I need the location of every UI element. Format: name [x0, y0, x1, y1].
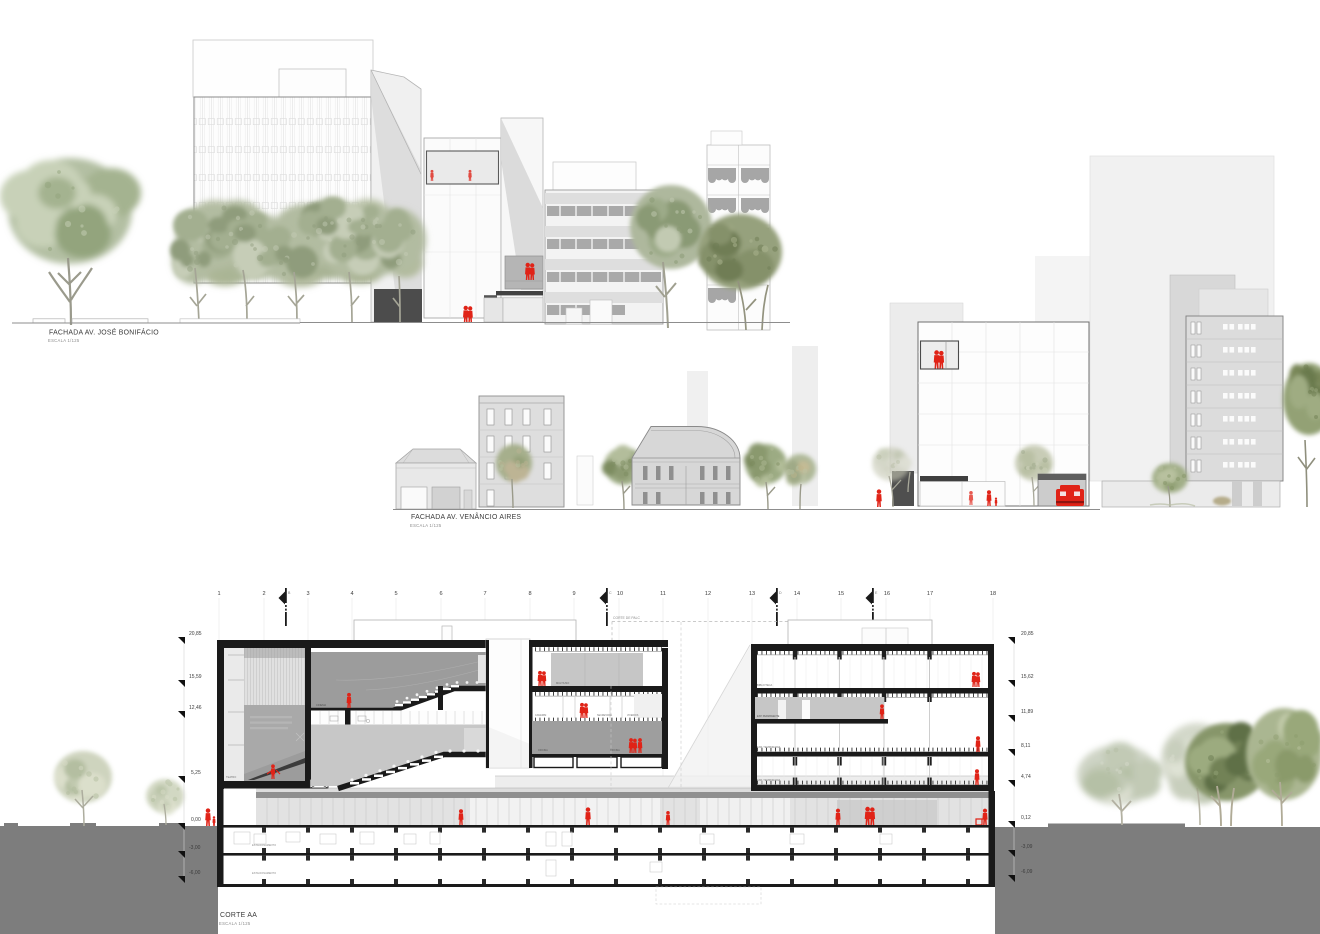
svg-text:0,00: 0,00 — [191, 817, 201, 823]
svg-text:20,85: 20,85 — [189, 631, 202, 637]
svg-text:TEATRO: TEATRO — [226, 775, 236, 779]
svg-text:8,11: 8,11 — [1021, 743, 1031, 749]
svg-text:CINEMA: CINEMA — [316, 703, 326, 707]
svg-text:-6,09: -6,09 — [1021, 869, 1033, 875]
svg-text:15: 15 — [838, 591, 844, 597]
svg-text:5,25: 5,25 — [191, 770, 201, 776]
svg-text:4,74: 4,74 — [1021, 774, 1031, 780]
svg-text:9: 9 — [572, 591, 575, 597]
svg-text:OFICINA: OFICINA — [610, 749, 620, 752]
svg-text:EXP. PERMANENTE: EXP. PERMANENTE — [757, 715, 780, 718]
svg-text:FACHADA AV. VENÂNCIO AIRES: FACHADA AV. VENÂNCIO AIRES — [411, 512, 521, 521]
svg-text:4: 4 — [350, 591, 353, 597]
svg-text:EXP. TEMPORARIA: EXP. TEMPORARIA — [757, 745, 781, 749]
svg-text:6: 6 — [439, 591, 442, 597]
svg-text:CAMARIM: CAMARIM — [535, 714, 546, 717]
svg-text:13: 13 — [749, 591, 755, 597]
svg-text:CORTE DE PALC: CORTE DE PALC — [613, 616, 641, 620]
svg-text:18: 18 — [990, 591, 996, 597]
svg-text:SECRETARIA: SECRETARIA — [597, 714, 613, 717]
svg-text:12,46: 12,46 — [189, 705, 202, 711]
svg-text:FACHADA AV. JOSÉ BONIFÁCIO: FACHADA AV. JOSÉ BONIFÁCIO — [49, 328, 159, 337]
svg-text:14: 14 — [794, 591, 800, 597]
svg-text:17: 17 — [927, 591, 933, 597]
svg-text:10: 10 — [617, 591, 623, 597]
svg-text:D: D — [779, 591, 782, 595]
svg-text:ESTACIONAMENTO: ESTACIONAMENTO — [252, 871, 276, 875]
svg-text:20,85: 20,85 — [1021, 631, 1034, 637]
svg-text:16: 16 — [884, 591, 890, 597]
svg-text:15,59: 15,59 — [189, 674, 202, 680]
svg-text:-6,00: -6,00 — [189, 870, 201, 876]
svg-text:EXP. TEMPORARIA: EXP. TEMPORARIA — [757, 778, 781, 782]
svg-text:8: 8 — [528, 591, 531, 597]
svg-text:ESCALA 1/125: ESCALA 1/125 — [219, 921, 251, 926]
svg-text:ESCALA 1/125: ESCALA 1/125 — [48, 338, 80, 343]
svg-text:BIBLIOTECA: BIBLIOTECA — [757, 683, 773, 687]
svg-text:3: 3 — [306, 591, 309, 597]
svg-text:-3,00: -3,00 — [189, 845, 201, 851]
svg-text:CORTE AA: CORTE AA — [220, 912, 257, 919]
svg-text:15,62: 15,62 — [1021, 674, 1034, 680]
svg-text:ESCALA 1/125: ESCALA 1/125 — [410, 523, 442, 528]
svg-text:7: 7 — [483, 591, 486, 597]
svg-text:12: 12 — [705, 591, 711, 597]
svg-text:1: 1 — [217, 591, 220, 597]
svg-text:OFICINA: OFICINA — [538, 749, 548, 752]
svg-text:11,89: 11,89 — [1021, 709, 1033, 715]
svg-text:MULTIUSO: MULTIUSO — [556, 681, 569, 685]
svg-text:11: 11 — [660, 591, 666, 597]
svg-text:VIVEIROS: VIVEIROS — [627, 714, 639, 717]
svg-text:0,12: 0,12 — [1021, 815, 1031, 821]
svg-text:5: 5 — [394, 591, 397, 597]
svg-text:-3,09: -3,09 — [1021, 844, 1033, 850]
svg-text:ESTACIONAMENTO: ESTACIONAMENTO — [252, 843, 276, 847]
svg-text:C: C — [609, 591, 612, 595]
svg-text:2: 2 — [262, 591, 265, 597]
